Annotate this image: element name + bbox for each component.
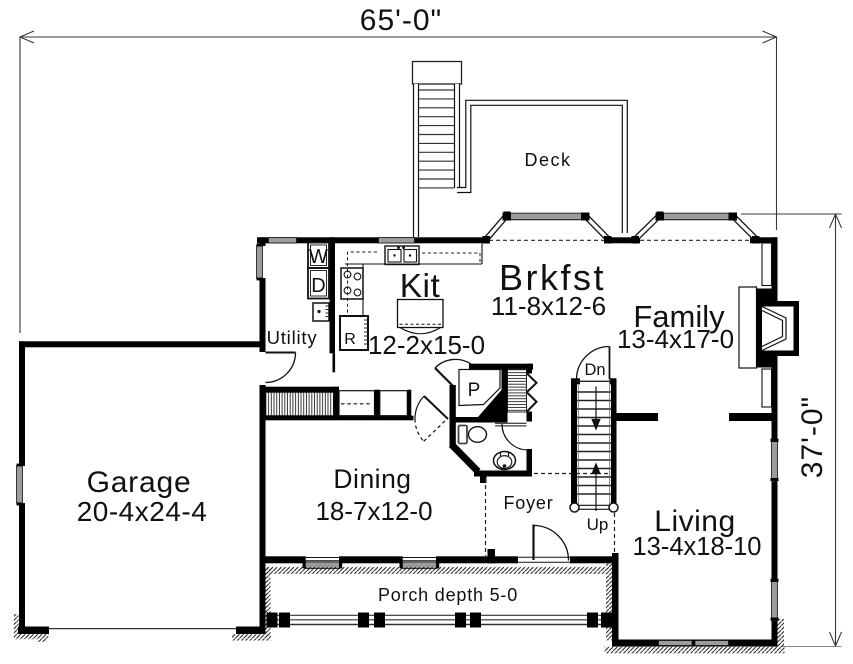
svg-text:12-2x15-0: 12-2x15-0 (368, 330, 485, 360)
svg-text:R: R (344, 331, 356, 348)
svg-text:37'-0": 37'-0" (796, 396, 829, 478)
svg-text:13-4x17-0: 13-4x17-0 (617, 324, 734, 354)
svg-text:65'-0": 65'-0" (360, 4, 442, 37)
svg-text:Foyer: Foyer (503, 493, 553, 513)
svg-text:Utility: Utility (267, 327, 318, 348)
svg-text:P: P (468, 380, 481, 401)
svg-text:D: D (311, 275, 325, 297)
svg-text:Deck: Deck (524, 150, 571, 170)
svg-text:Dn: Dn (584, 361, 605, 379)
svg-text:20-4x24-4: 20-4x24-4 (77, 496, 208, 527)
svg-text:18-7x12-0: 18-7x12-0 (315, 496, 432, 526)
svg-text:W: W (309, 246, 328, 268)
svg-text:Porch depth 5-0: Porch depth 5-0 (378, 585, 518, 605)
svg-text:11-8x12-6: 11-8x12-6 (491, 291, 606, 321)
svg-text:Garage: Garage (87, 466, 192, 499)
svg-text:Dining: Dining (333, 464, 411, 494)
svg-text:13-4x18-10: 13-4x18-10 (632, 533, 761, 561)
svg-text:Kit: Kit (400, 268, 441, 305)
svg-text:Up: Up (587, 515, 609, 534)
